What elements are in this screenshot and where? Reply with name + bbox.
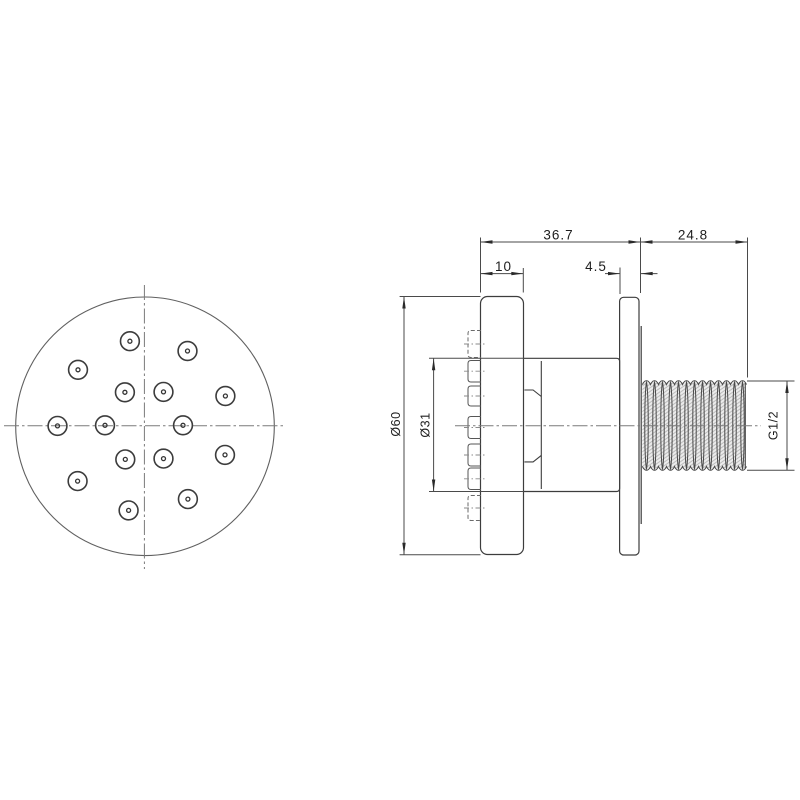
svg-text:4.5: 4.5 [585, 259, 607, 274]
svg-text:10: 10 [495, 259, 512, 274]
svg-text:24.8: 24.8 [678, 228, 708, 243]
svg-text:Ø60: Ø60 [389, 411, 403, 436]
svg-text:Ø31: Ø31 [419, 412, 433, 437]
svg-text:G1/2: G1/2 [767, 411, 781, 440]
svg-text:36.7: 36.7 [543, 228, 573, 243]
